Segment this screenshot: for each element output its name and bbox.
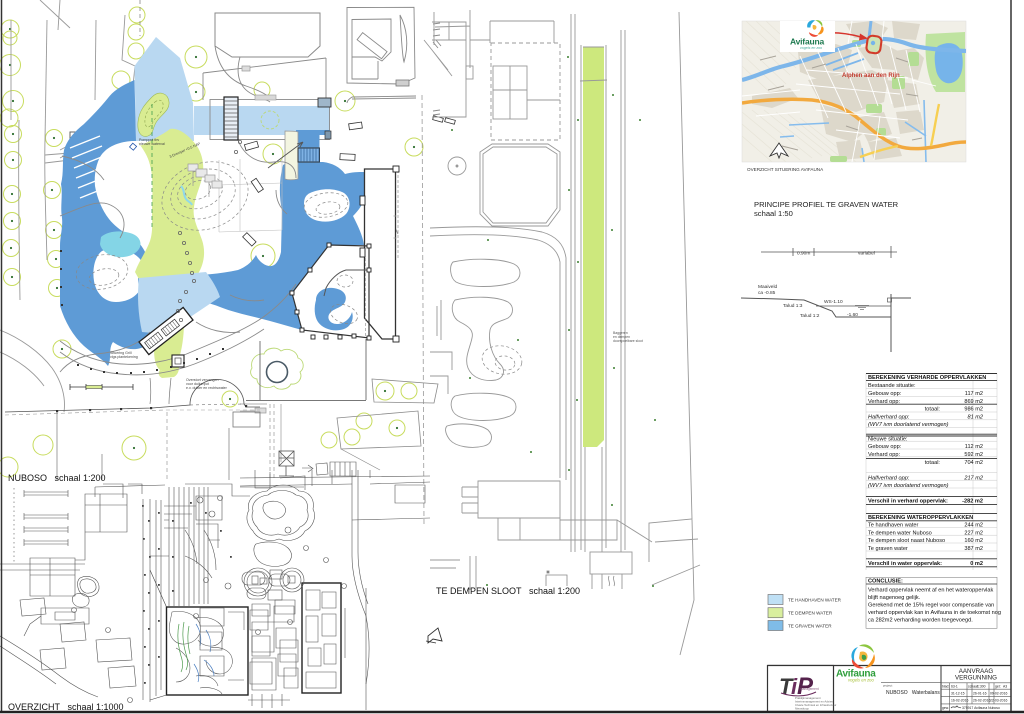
svg-text:160 m2: 160 m2: [964, 538, 983, 544]
svg-text:Verhard oppervlak neemt af en: Verhard oppervlak neemt af en het watero…: [868, 588, 994, 594]
svg-text:592 m2: 592 m2: [964, 452, 983, 458]
svg-text:get:: get:: [995, 685, 1001, 689]
svg-text:986 m2: 986 m2: [964, 407, 983, 413]
svg-text:1:300: 1:300: [977, 685, 986, 689]
svg-text:112 m2: 112 m2: [965, 444, 983, 450]
svg-text:TE DEMPEN WATER: TE DEMPEN WATER: [788, 611, 833, 616]
svg-text:869 m2: 869 m2: [964, 399, 983, 405]
svg-text:-1.60: -1.60: [847, 312, 858, 318]
svg-text:Te handhaven water: Te handhaven water: [868, 523, 919, 529]
svg-text:Maaiveld: Maaiveld: [758, 284, 778, 290]
svg-text:OVERZICHT SITUERING AVIFAUNA: OVERZICHT SITUERING AVIFAUNA: [747, 167, 824, 172]
svg-text:Halfverhard opp:: Halfverhard opp:: [868, 475, 910, 481]
svg-text:NUBOSO schaal 1:200: NUBOSO schaal 1:200: [8, 473, 106, 483]
svg-text:gew.: gew.: [942, 706, 949, 710]
svg-text:NUBOSO Waterbalans: NUBOSO Waterbalans: [886, 690, 940, 696]
svg-text:blijft nagenoeg gelijk.: blijft nagenoeg gelijk.: [868, 595, 921, 601]
svg-text:doorspoelbare sloot: doorspoelbare sloot: [613, 339, 643, 343]
svg-text:09-02-2016: 09-02-2016: [990, 692, 1007, 696]
svg-text:schaal 1:50: schaal 1:50: [754, 209, 793, 218]
svg-text:management: management: [800, 687, 819, 691]
svg-text:Alphen aan den Rijn: Alphen aan den Rijn: [842, 73, 900, 79]
svg-text:WS-1.10: WS-1.10: [824, 299, 843, 305]
svg-text:Avifauna: Avifauna: [790, 37, 824, 47]
svg-text:ca -0.85: ca -0.85: [758, 290, 776, 296]
svg-text:Nieuwe situatie:: Nieuwe situatie:: [868, 436, 908, 442]
svg-text:VERGUNNING: VERGUNNING: [955, 675, 997, 682]
svg-text:vlgs plantekening: vlgs plantekening: [110, 355, 138, 359]
svg-text:26-01-16: 26-01-16: [973, 692, 987, 696]
svg-text:TE HANDHAVEN WATER: TE HANDHAVEN WATER: [788, 598, 842, 603]
svg-text:TE DEMPEN SLOOT schaal 1:200: TE DEMPEN SLOOT schaal 1:200: [436, 586, 580, 596]
svg-text:vogels en zoo: vogels en zoo: [800, 46, 822, 50]
svg-text:Talud 1:2: Talud 1:2: [800, 313, 820, 319]
svg-text:26-02-2016: 26-02-2016: [973, 699, 990, 703]
svg-text:375917 Avifauna Nuboso: 375917 Avifauna Nuboso: [962, 706, 1000, 710]
svg-text:Gebouw opp:: Gebouw opp:: [868, 391, 902, 397]
svg-text:16-02-2016: 16-02-2016: [951, 699, 968, 703]
svg-text:0.90m: 0.90m: [797, 251, 810, 257]
svg-text:totaal:: totaal:: [925, 460, 941, 466]
svg-text:totaal:: totaal:: [925, 407, 941, 413]
svg-text:OVERZICHT schaal 1:1000: OVERZICHT schaal 1:1000: [8, 702, 124, 712]
svg-text:Te graven water: Te graven water: [868, 546, 908, 552]
svg-text:244 m2: 244 m2: [964, 523, 983, 529]
svg-text:704 m2: 704 m2: [964, 460, 983, 466]
svg-text:31-12-15: 31-12-15: [951, 692, 965, 696]
svg-text:BEREKENING VERHARDE OPPERVLAKK: BEREKENING VERHARDE OPPERVLAKKEN: [868, 375, 986, 381]
svg-text:TE GRAVEN WATER: TE GRAVEN WATER: [788, 624, 832, 629]
svg-text:BEREKENING WATEROPPERVLAKKEN: BEREKENING WATEROPPERVLAKKEN: [868, 515, 973, 521]
svg-text:Gebouw opp:: Gebouw opp:: [868, 444, 902, 450]
svg-text:22-03-2016: 22-03-2016: [990, 699, 1007, 703]
svg-text:0 m2: 0 m2: [970, 561, 983, 567]
svg-text:Gerekend met de 15% regel voor: Gerekend met de 15% regel voor compensat…: [868, 603, 994, 609]
svg-text:387 m2: 387 m2: [964, 546, 983, 552]
svg-text:PRINCIPE PROFIEL TE GRAVEN WAT: PRINCIPE PROFIEL TE GRAVEN WATER: [754, 200, 899, 209]
svg-text:ca 282m2 verharding worden toe: ca 282m2 verharding worden toegevoegd.: [868, 618, 973, 624]
svg-text:(WV7 ivm doorlatend vermogen): (WV7 ivm doorlatend vermogen): [868, 422, 949, 428]
svg-text:e.v. duiker en rechtswater: e.v. duiker en rechtswater: [186, 386, 228, 390]
svg-text:227 m2: 227 m2: [964, 530, 983, 536]
svg-text:project:: project:: [883, 684, 893, 688]
svg-text:Nieuwkoop: Nieuwkoop: [795, 707, 809, 711]
svg-text:Te dempen water Nuboso: Te dempen water Nuboso: [868, 530, 932, 536]
svg-text:Bestaande situatie:: Bestaande situatie:: [868, 383, 916, 389]
svg-text:Verschil in water oppervlak:: Verschil in water oppervlak:: [868, 561, 942, 567]
svg-text:-282 m2: -282 m2: [962, 499, 983, 505]
svg-text:blad:: blad:: [942, 685, 949, 689]
svg-text:vogels en zoo: vogels en zoo: [848, 678, 875, 683]
svg-text:A3: A3: [1003, 685, 1007, 689]
svg-text:Verschil in verhard oppervlak:: Verschil in verhard oppervlak:: [868, 499, 948, 505]
svg-text:81 m2: 81 m2: [967, 414, 983, 420]
svg-text:(WV7 ivm doorlatend vermogen): (WV7 ivm doorlatend vermogen): [868, 483, 949, 489]
svg-text:217 m2: 217 m2: [963, 475, 984, 481]
svg-text:Halfverhard opp:: Halfverhard opp:: [868, 414, 910, 420]
svg-text:verhard oppervlak kan in Avif: verhard oppervlak kan in Avifauna in de …: [868, 610, 1001, 616]
svg-text:nieuwe waterval: nieuwe waterval: [139, 142, 165, 146]
svg-text:Verhard opp:: Verhard opp:: [868, 452, 900, 458]
svg-text:63-1: 63-1: [951, 685, 958, 689]
svg-text:Verhard opp:: Verhard opp:: [868, 399, 900, 405]
svg-text:117 m2: 117 m2: [965, 391, 983, 397]
svg-text:variabel: variabel: [858, 251, 875, 257]
svg-text:CONCLUSIE:: CONCLUSIE:: [868, 579, 903, 585]
svg-text:Te dempen sloot naast Nuboso: Te dempen sloot naast Nuboso: [868, 538, 945, 544]
svg-text:Talud 1:3: Talud 1:3: [783, 303, 803, 309]
